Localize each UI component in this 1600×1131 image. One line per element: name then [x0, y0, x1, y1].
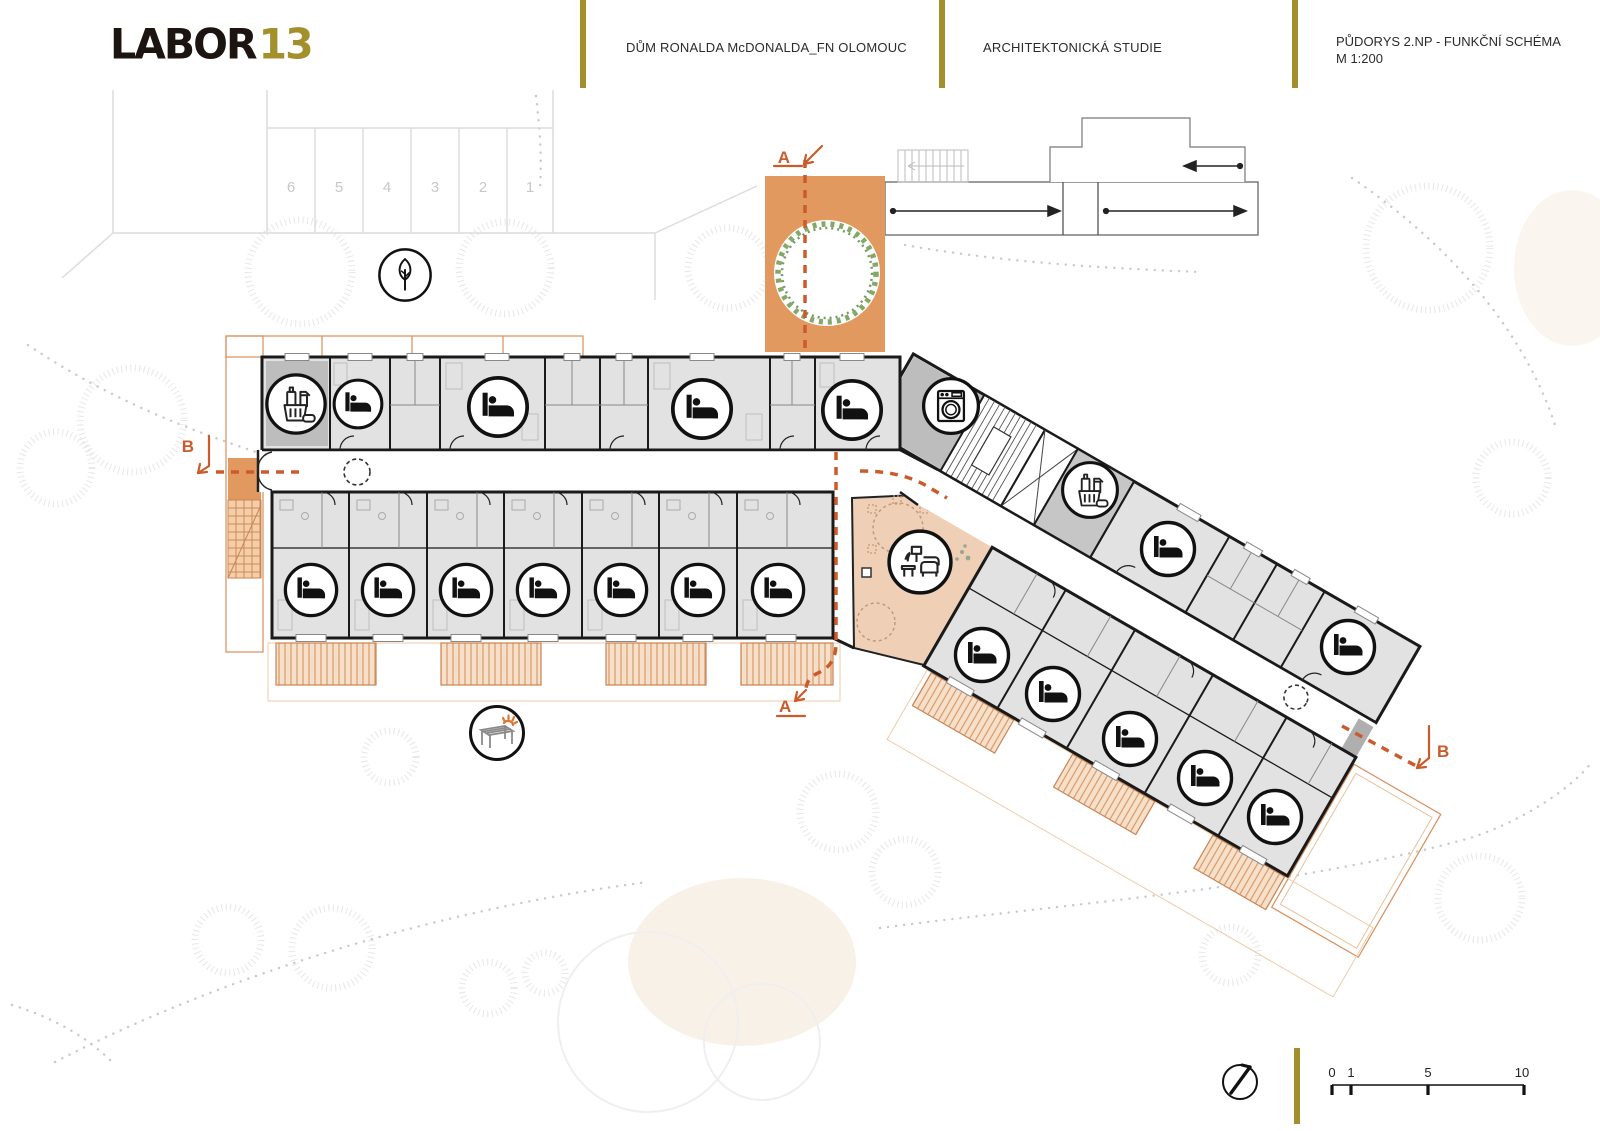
scale-label-1: 1	[1347, 1065, 1354, 1080]
cleaning-supplies-icon	[267, 375, 325, 433]
bed-icon	[1322, 621, 1375, 674]
parking-number: 4	[383, 179, 391, 196]
section-label-a-bottom: A	[779, 697, 791, 716]
lounge-seating-icon	[889, 531, 951, 593]
bed-icon	[1142, 523, 1195, 576]
bed-icon	[956, 629, 1009, 682]
bed-icon	[362, 564, 413, 615]
bed-icon	[823, 381, 881, 439]
bed-icon	[752, 564, 803, 615]
bed-icon	[440, 564, 491, 615]
parking-number: 5	[335, 179, 343, 196]
scale-bar: 0 1 5 10	[1328, 1065, 1529, 1095]
bed-icon	[595, 564, 646, 615]
parking-number: 3	[431, 179, 439, 196]
floor-plan-canvas: 6 5 4 3 2 1	[0, 0, 1600, 1131]
section-label-a-top: A	[778, 148, 790, 167]
scale-label-5: 5	[1424, 1065, 1431, 1080]
parking-number: 1	[526, 179, 534, 196]
scale-label-10: 10	[1515, 1065, 1529, 1080]
bed-icon	[1104, 713, 1157, 766]
bed-icon	[673, 380, 731, 438]
bed-icon	[517, 564, 568, 615]
scale-label-0: 0	[1328, 1065, 1335, 1080]
bed-icon	[285, 564, 336, 615]
exterior-stair-west	[228, 458, 261, 578]
cleaning-supplies-icon	[1063, 463, 1118, 518]
bed-icon	[1249, 791, 1302, 844]
drawing-sheet: LABOR13 DŮM RONALDA McDONALDA_FN OLOMOUC…	[0, 0, 1600, 1131]
washing-machine-icon	[924, 379, 979, 434]
section-label-b-left: B	[182, 437, 194, 456]
bed-icon	[334, 380, 382, 428]
bed-icon	[1179, 752, 1232, 805]
balconies-south	[268, 643, 840, 701]
bed-icon	[1027, 668, 1080, 721]
pergola-icon	[471, 707, 524, 760]
parking-number: 2	[479, 179, 487, 196]
parking-number: 6	[287, 179, 295, 196]
entrance-terrace	[765, 176, 885, 352]
bed-icon	[469, 378, 527, 436]
section-label-b-right: B	[1437, 742, 1449, 761]
north-arrow-icon	[1223, 1065, 1257, 1099]
tree-icon	[379, 249, 430, 300]
neighbor-building	[885, 118, 1258, 235]
bed-icon	[672, 564, 723, 615]
